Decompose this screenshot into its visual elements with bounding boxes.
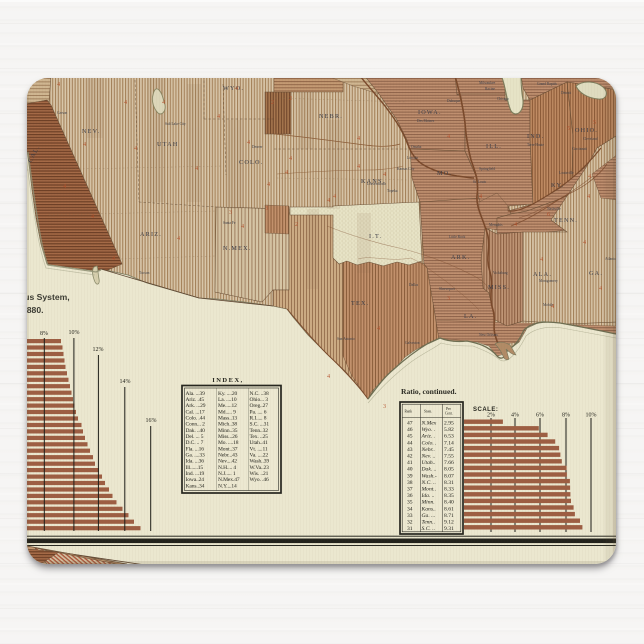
svg-text:7.45: 7.45 [444,447,454,453]
svg-text:4: 4 [91,213,94,220]
svg-text:Colo. .44: Colo. .44 [186,416,206,422]
svg-text:Oreg..27: Oreg..27 [250,403,269,409]
svg-text:IND.: IND. [527,133,544,140]
svg-text:4: 4 [551,303,554,310]
svg-text:4: 4 [57,81,60,88]
svg-text:4: 4 [217,113,220,120]
svg-text:3: 3 [229,209,232,216]
svg-text:7.55: 7.55 [444,454,454,460]
svg-text:WYO.: WYO. [223,85,244,92]
svg-text:4: 4 [267,181,270,188]
svg-text:N.Mex.47: N.Mex.47 [218,477,240,483]
svg-text:8.07: 8.07 [444,473,454,479]
svg-text:Nebr..: Nebr.. [421,447,435,453]
svg-text:Mont..: Mont.. [421,487,437,493]
svg-text:46: 46 [407,427,413,433]
svg-text:I.T.: I.T. [369,233,382,240]
svg-text:Fla. ...16: Fla. ...16 [186,446,205,452]
svg-text:Ida. ..: Ida. .. [421,493,435,499]
svg-text:Ratio, continued.: Ratio, continued. [401,387,457,396]
svg-text:4: 4 [241,223,244,230]
svg-text:4: 4 [177,235,180,242]
svg-text:Wash.-: Wash.- [422,473,437,479]
svg-text:8.33: 8.33 [444,487,454,493]
svg-text:8.40: 8.40 [444,500,454,506]
svg-text:Wash..39: Wash..39 [250,459,270,465]
svg-text:4: 4 [587,193,590,200]
svg-text:N.C. ..: N.C. .. [421,480,436,486]
svg-text:4: 4 [162,99,165,106]
svg-text:Iowa..24: Iowa..24 [186,477,205,483]
svg-text:4%: 4% [511,413,519,419]
svg-text:32: 32 [407,520,413,526]
svg-text:Dak. ..40: Dak. ..40 [186,428,206,434]
svg-text:Cincinnati: Cincinnati [572,147,587,151]
svg-text:4: 4 [377,325,380,332]
svg-text:Terre Haute: Terre Haute [527,143,544,147]
svg-text:ILL.: ILL. [486,143,502,150]
svg-text:Nev....42: Nev....42 [218,459,237,465]
svg-text:Dallas: Dallas [409,283,419,287]
svg-text:14%: 14% [120,379,131,385]
svg-text:3: 3 [383,403,386,410]
svg-text:36: 36 [407,493,413,499]
svg-text:4: 4 [479,193,482,200]
svg-text:MISS.: MISS. [488,284,510,291]
svg-text:Ky. ....20: Ky. ....20 [218,391,237,397]
svg-text:W.Va..23: W.Va..23 [250,465,270,471]
svg-text:8.05: 8.05 [444,467,454,473]
svg-text:Grand Rapids: Grand Rapids [537,82,557,86]
svg-text:4: 4 [112,255,115,262]
svg-text:8%: 8% [40,331,48,337]
svg-text:Chicago: Chicago [497,97,509,101]
svg-text:Cent.: Cent. [445,412,453,416]
svg-text:Tucson: Tucson [139,271,150,275]
svg-text:9.12: 9.12 [444,520,454,526]
svg-text:12%: 12% [93,347,104,353]
svg-text:TEX.: TEX. [351,300,369,307]
svg-text:Wis. ..21: Wis. ..21 [250,471,269,477]
svg-text:St. Louis: St. Louis [473,180,487,184]
svg-text:S.C. ...31: S.C. ...31 [250,422,270,428]
svg-text:Springfield: Springfield [479,167,495,171]
svg-text:2%: 2% [487,413,495,419]
svg-text:Cleveland: Cleveland [583,137,598,141]
svg-text:ALA.: ALA. [533,271,552,278]
svg-text:3: 3 [265,205,268,212]
svg-text:ARIZ.: ARIZ. [140,231,162,238]
svg-text:4: 4 [583,239,586,246]
svg-text:S.C. ..: S.C. .. [422,526,436,532]
svg-text:INDEX,: INDEX, [212,377,244,384]
svg-text:New Orleans: New Orleans [479,333,498,337]
svg-text:45: 45 [407,434,413,440]
svg-text:2.95: 2.95 [444,421,454,427]
svg-text:Carson: Carson [57,111,67,115]
svg-text:41: 41 [407,460,413,466]
svg-text:Dubuque: Dubuque [447,99,461,103]
svg-text:33: 33 [407,513,413,519]
svg-text:5: 5 [593,119,596,126]
svg-text:35: 35 [407,500,413,506]
svg-text:8%: 8% [562,413,570,419]
svg-text:Salt Lake City: Salt Lake City [165,122,186,126]
svg-text:Louisville: Louisville [559,171,574,175]
svg-text:GA.: GA. [589,270,603,277]
svg-text:Kans..: Kans.. [421,506,436,512]
svg-text:N.Mex: N.Mex [421,421,437,427]
svg-text:San Antonio: San Antonio [337,337,355,341]
svg-text:38: 38 [407,480,413,486]
svg-text:Rank: Rank [405,410,413,414]
svg-text:2: 2 [271,99,274,106]
svg-text:State.: State. [424,410,432,414]
svg-text:31: 31 [407,526,413,532]
svg-text:4: 4 [195,165,198,172]
svg-text:43: 43 [407,447,413,453]
svg-text:6%: 6% [536,413,544,419]
svg-text:La. ....10: La. ....10 [218,397,237,403]
svg-text:4: 4 [588,173,591,180]
svg-text:Denver: Denver [252,145,263,149]
svg-text:N.MEX.: N.MEX. [223,245,252,252]
svg-text:Shreveport: Shreveport [439,287,455,291]
svg-text:Kansas City: Kansas City [397,167,415,171]
svg-text:KY.: KY. [551,182,564,189]
svg-text:4: 4 [357,163,360,170]
svg-text:4: 4 [333,193,336,200]
svg-text:Dak. ..: Dak. .. [421,467,437,473]
svg-text:Wyo. .46: Wyo. .46 [250,477,270,483]
svg-text:Del. ... 5: Del. ... 5 [186,434,204,440]
svg-text:4: 4 [447,133,450,140]
svg-text:Nev. ..: Nev. .. [421,454,436,460]
svg-text:Milwaukee: Milwaukee [479,81,496,85]
svg-text:Utah..: Utah.. [422,460,436,466]
svg-text:Ga. ....33: Ga. ....33 [186,453,206,459]
svg-text:N.Y....14: N.Y....14 [218,483,237,489]
svg-text:Galveston: Galveston [405,341,420,345]
svg-text:Minn.: Minn. [421,500,435,506]
svg-text:Tenn..: Tenn.. [422,520,435,526]
svg-text:10%: 10% [69,330,80,336]
svg-text:4: 4 [134,145,137,152]
svg-text:MO.: MO. [437,170,452,177]
svg-text:Ark. ...29: Ark. ...29 [186,403,206,409]
svg-text:8.61: 8.61 [444,506,454,512]
svg-text:Md..... 9: Md..... 9 [218,409,236,415]
svg-text:4: 4 [289,155,292,162]
svg-text:Me.....12: Me.....12 [218,403,237,409]
svg-text:Omaha: Omaha [411,145,422,149]
svg-text:Tenn..32: Tenn..32 [250,428,269,434]
svg-text:Little Rock: Little Rock [449,235,465,239]
svg-text:3: 3 [447,295,450,302]
svg-text:Vt. ....11: Vt. ....11 [250,446,268,452]
svg-text:Racine: Racine [485,87,495,91]
svg-text:1880.: 1880. [27,305,44,315]
svg-text:Mass..13: Mass..13 [218,416,237,422]
svg-text:Ida. ...36: Ida. ...36 [186,459,205,465]
svg-text:4: 4 [383,171,386,178]
svg-text:Atlanta: Atlanta [605,257,616,261]
svg-text:Vicksburg: Vicksburg [493,271,508,275]
svg-text:TENN.: TENN. [554,217,578,224]
svg-text:4: 4 [540,256,543,263]
svg-text:D.C. .. 7: D.C. .. 7 [186,440,204,446]
svg-text:Ill......15: Ill......15 [186,465,204,471]
svg-text:Mont..37: Mont..37 [218,446,238,452]
svg-text:4: 4 [247,139,250,146]
svg-text:7.14: 7.14 [444,440,454,446]
svg-text:4: 4 [83,141,86,148]
svg-text:Minn..35: Minn..35 [218,428,238,434]
svg-text:4: 4 [327,373,330,380]
svg-text:16%: 16% [146,418,157,424]
svg-text:10%: 10% [586,413,597,419]
svg-text:4: 4 [63,183,66,190]
svg-text:Conn... 2: Conn... 2 [186,422,206,428]
svg-text:Montgomery: Montgomery [539,279,558,283]
svg-text:47: 47 [407,421,413,427]
svg-text:Utah..41: Utah..41 [250,440,268,446]
svg-text:4: 4 [327,197,330,204]
svg-text:8.35: 8.35 [444,493,454,499]
svg-text:5: 5 [567,125,570,132]
svg-text:5.82: 5.82 [444,427,454,433]
svg-text:Nebr...43: Nebr...43 [218,453,238,459]
svg-text:40: 40 [407,467,413,473]
svg-text:6.53: 6.53 [444,434,454,440]
svg-text:Memphis: Memphis [489,223,503,227]
svg-text:Topeka: Topeka [387,189,398,193]
svg-text:Mo. ....18: Mo. ....18 [218,440,239,446]
svg-text:ous System,: ous System, [27,292,70,302]
svg-text:OHIO.: OHIO. [575,127,598,134]
svg-text:Va. ....22: Va. ....22 [250,453,269,459]
svg-text:44: 44 [407,440,413,446]
svg-text:4: 4 [124,99,127,106]
svg-text:N.H.... 4: N.H.... 4 [218,465,236,471]
svg-text:8.31: 8.31 [444,480,454,486]
svg-text:Per: Per [446,407,452,411]
svg-text:7.66: 7.66 [444,460,454,466]
svg-text:Des Moines: Des Moines [417,119,435,123]
svg-text:Pa. .... 6: Pa. .... 6 [250,409,267,415]
svg-text:6: 6 [547,211,550,218]
svg-text:Miss...26: Miss...26 [218,434,238,440]
svg-text:Lincoln: Lincoln [407,156,418,160]
svg-text:Tex. ..25: Tex. ..25 [250,434,269,440]
svg-text:4: 4 [357,135,360,142]
svg-text:4: 4 [514,221,517,228]
svg-text:Colo. .: Colo. . [422,440,437,446]
svg-text:Leavenworth: Leavenworth [367,182,386,186]
svg-text:Ohio... 3: Ohio... 3 [250,397,269,403]
svg-text:2: 2 [295,221,298,228]
svg-text:4: 4 [599,285,602,292]
svg-text:NEV.: NEV. [82,128,100,135]
svg-text:4: 4 [235,85,238,92]
svg-text:Santa Fe: Santa Fe [223,221,236,225]
svg-text:N.C. ..38: N.C. ..38 [250,391,269,397]
svg-text:42: 42 [407,454,413,460]
svg-text:ARK.: ARK. [451,254,470,261]
svg-text:Cal. ...17: Cal. ...17 [186,409,205,415]
svg-text:Mich..38: Mich..38 [218,422,237,428]
svg-text:NEBR.: NEBR. [319,113,343,120]
svg-text:39: 39 [407,473,413,479]
svg-text:N.J..... 1: N.J..... 1 [218,471,236,477]
svg-text:Ariz. .: Ariz. . [421,434,436,440]
svg-text:9.31: 9.31 [444,526,454,532]
svg-text:COLO.: COLO. [239,159,263,166]
svg-text:34: 34 [407,506,413,512]
svg-text:Ala. ...39: Ala. ...39 [186,391,206,397]
svg-text:Wyo. .: Wyo. . [422,427,436,433]
svg-text:Ga. ...: Ga. ... [422,513,436,519]
svg-text:UTAH: UTAH [157,141,179,148]
svg-text:37: 37 [407,487,413,493]
svg-text:8.71: 8.71 [444,513,454,519]
svg-text:IOWA.: IOWA. [418,109,442,116]
svg-text:2: 2 [289,95,292,102]
svg-text:4: 4 [285,169,288,176]
svg-text:Kans..34: Kans..34 [186,483,205,489]
svg-text:Detroit: Detroit [561,91,571,95]
svg-text:Ariz. .45: Ariz. .45 [186,397,205,403]
svg-text:Ind. ...19: Ind. ...19 [186,471,205,477]
svg-text:LA.: LA. [464,313,477,320]
svg-text:R.I..... 8: R.I..... 8 [250,416,267,422]
